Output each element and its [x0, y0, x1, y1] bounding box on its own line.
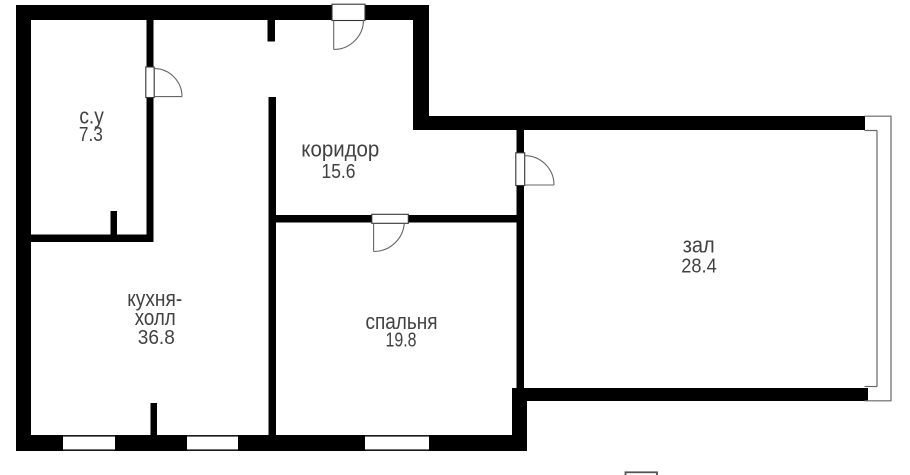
svg-text:19.8: 19.8: [386, 330, 417, 352]
svg-text:28.4: 28.4: [681, 256, 717, 278]
svg-text:36.8: 36.8: [138, 327, 175, 349]
svg-text:7.3: 7.3: [79, 124, 103, 146]
svg-text:15.6: 15.6: [322, 161, 356, 183]
svg-text:зал: зал: [683, 233, 715, 258]
svg-text:коридор: коридор: [301, 137, 379, 162]
